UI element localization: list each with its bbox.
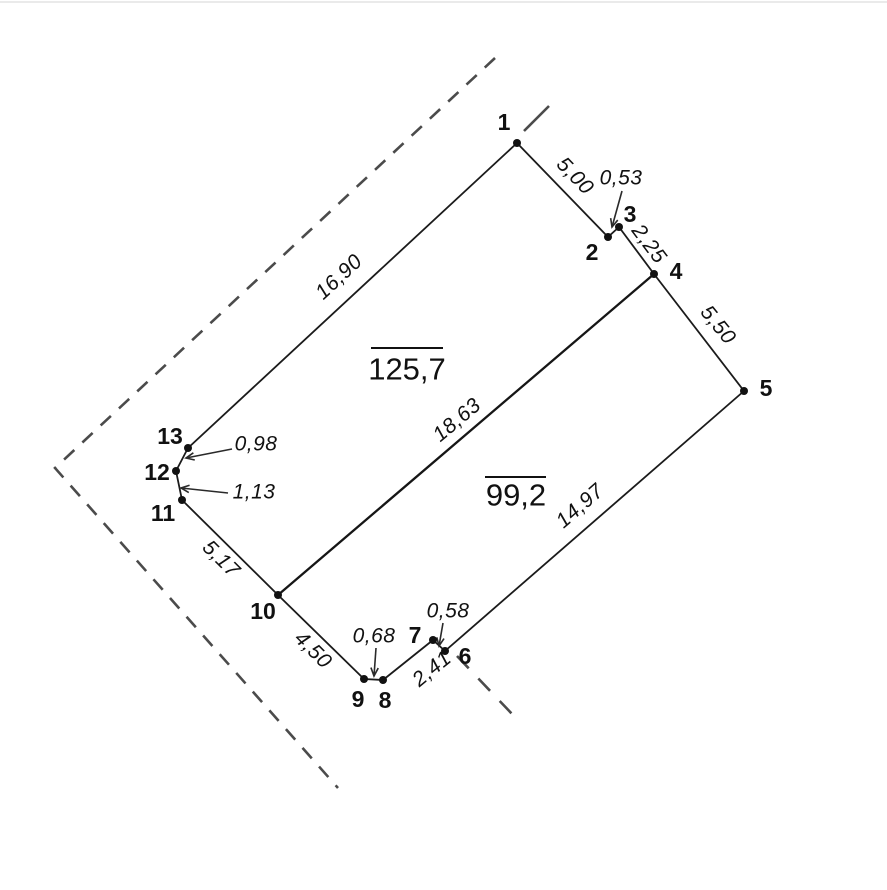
area-label-125,7: 125,7	[368, 352, 446, 387]
point-label-2: 2	[586, 239, 599, 265]
survey-sketch-page: 0,530,580,680,981,135,002,255,5014,972,4…	[0, 0, 887, 890]
point-dot-13	[184, 444, 192, 452]
leader-label-1,13: 1,13	[233, 481, 276, 504]
leader-label-0,53: 0,53	[600, 167, 643, 190]
point-label-5: 5	[760, 375, 773, 401]
point-label-12: 12	[144, 459, 170, 485]
leader-label-0,58: 0,58	[427, 600, 470, 623]
leader-label-0,98: 0,98	[235, 433, 278, 456]
point-dot-5	[740, 387, 748, 395]
boundary-edge-11-12	[176, 471, 182, 500]
point-dot-12	[172, 467, 180, 475]
point-label-10: 10	[250, 598, 276, 624]
point-dot-7	[429, 636, 437, 644]
point-label-9: 9	[352, 686, 365, 712]
leader-label-0,68: 0,68	[353, 625, 396, 648]
point-dot-11	[178, 496, 186, 504]
point-label-6: 6	[459, 643, 472, 669]
point-label-1: 1	[498, 109, 511, 135]
point-label-8: 8	[379, 687, 392, 713]
point-dot-1	[513, 139, 521, 147]
edge-label-2,41: 2,41	[407, 647, 456, 692]
boundary-edge-5-6	[445, 391, 744, 651]
edge-label-5,50: 5,50	[696, 301, 741, 349]
point-label-4: 4	[670, 258, 683, 284]
edge-label-16,90: 16,90	[311, 250, 367, 304]
edge-label-18,63: 18,63	[429, 393, 486, 446]
point-label-13: 13	[157, 423, 183, 449]
point-dot-3	[615, 223, 623, 231]
edge-label-5,17: 5,17	[198, 536, 245, 583]
point-dot-4	[650, 270, 658, 278]
extension-dash-point-1	[524, 106, 549, 131]
edge-label-14,97: 14,97	[552, 479, 609, 533]
point-label-3: 3	[624, 201, 637, 227]
point-dot-8	[379, 676, 387, 684]
point-dot-9	[360, 675, 368, 683]
point-dot-6	[441, 647, 449, 655]
point-dot-2	[604, 233, 612, 241]
edge-label-4,50: 4,50	[290, 627, 337, 674]
boundary-edge-10-11	[182, 500, 278, 595]
survey-plan-svg: 0,530,580,680,981,135,002,255,5014,972,4…	[0, 0, 887, 890]
area-label-99,2: 99,2	[486, 478, 546, 513]
edge-label-5,00: 5,00	[552, 153, 598, 200]
point-label-11: 11	[151, 500, 176, 526]
divider-line-4-10	[278, 274, 654, 595]
point-label-7: 7	[409, 622, 422, 648]
